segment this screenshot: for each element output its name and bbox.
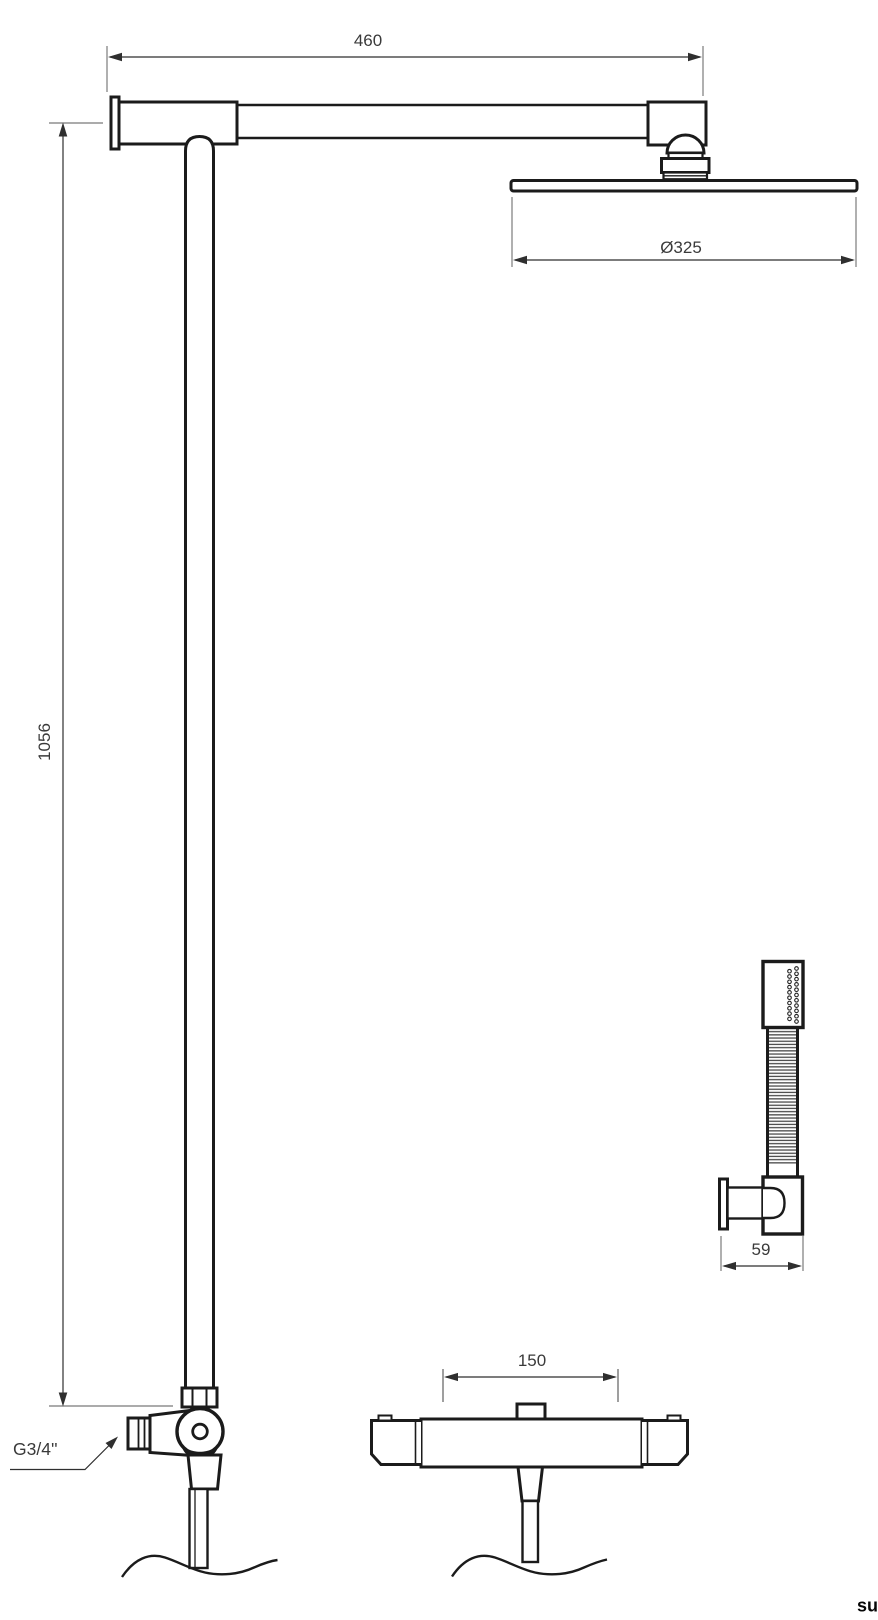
arm-tee-body (119, 102, 237, 144)
arrow-right (603, 1373, 617, 1381)
column-nut (182, 1388, 217, 1407)
arrow-left (444, 1373, 458, 1381)
diverter-valve (122, 1388, 278, 1577)
dimension-head-diameter: Ø325 (512, 197, 856, 267)
arrow-left (722, 1262, 736, 1270)
thermostatic-mixer: 150 (372, 1351, 688, 1577)
watermark-text: su (857, 1596, 878, 1616)
bracket-pipe (728, 1188, 764, 1219)
right-handle (642, 1421, 688, 1465)
handle-ribbing (769, 1029, 796, 1165)
arrow-right (788, 1262, 802, 1270)
dimension-bracket-depth: 59 (721, 1236, 803, 1271)
shower-system-drawing: 1056 460 Ø325 (0, 0, 878, 1620)
arrow-right (688, 53, 702, 61)
dimension-value-mixer-inlet-spacing: 150 (518, 1351, 546, 1370)
horizontal-arm-pipe (237, 105, 648, 138)
head-connector-nut (662, 159, 710, 173)
shower-column-pipe (186, 137, 214, 1390)
outlet-cone (518, 1467, 543, 1501)
rain-shower-head (511, 181, 857, 192)
hand-shower-bracket (720, 1177, 803, 1234)
technical-drawing-page: 1056 460 Ø325 (0, 0, 878, 1620)
arrow-left (513, 256, 527, 264)
dimension-value-column-height: 1056 (35, 723, 54, 761)
hose-cone (188, 1455, 221, 1489)
dimension-value-arm-length: 460 (354, 31, 382, 50)
inlet-thread-label: G3/4'' (10, 1437, 118, 1470)
dimension-arm-length: 460 (107, 31, 703, 96)
wall-flange (111, 97, 119, 149)
left-handle (372, 1421, 422, 1465)
inlet-thread-text: G3/4'' (13, 1439, 58, 1459)
hand-shower (720, 962, 804, 1235)
arrow-right (841, 256, 855, 264)
mixer-body (421, 1419, 642, 1467)
shower-hose (190, 1489, 208, 1568)
dimension-value-bracket-depth: 59 (752, 1240, 771, 1259)
left-handle-tick (379, 1416, 392, 1421)
dimension-column-height: 1056 (35, 123, 173, 1407)
dimension-mixer-inlet-spacing: 150 (443, 1351, 618, 1402)
mixer-hose (523, 1501, 539, 1562)
bracket-socket (763, 1188, 785, 1218)
arrow-down (59, 1393, 68, 1407)
arrow-up (59, 123, 68, 137)
right-handle-tick (668, 1416, 681, 1421)
bracket-wall-plate (720, 1179, 728, 1229)
knob-button (193, 1424, 208, 1439)
arrow-left (108, 53, 122, 61)
dimension-value-head-diameter: Ø325 (660, 238, 702, 257)
